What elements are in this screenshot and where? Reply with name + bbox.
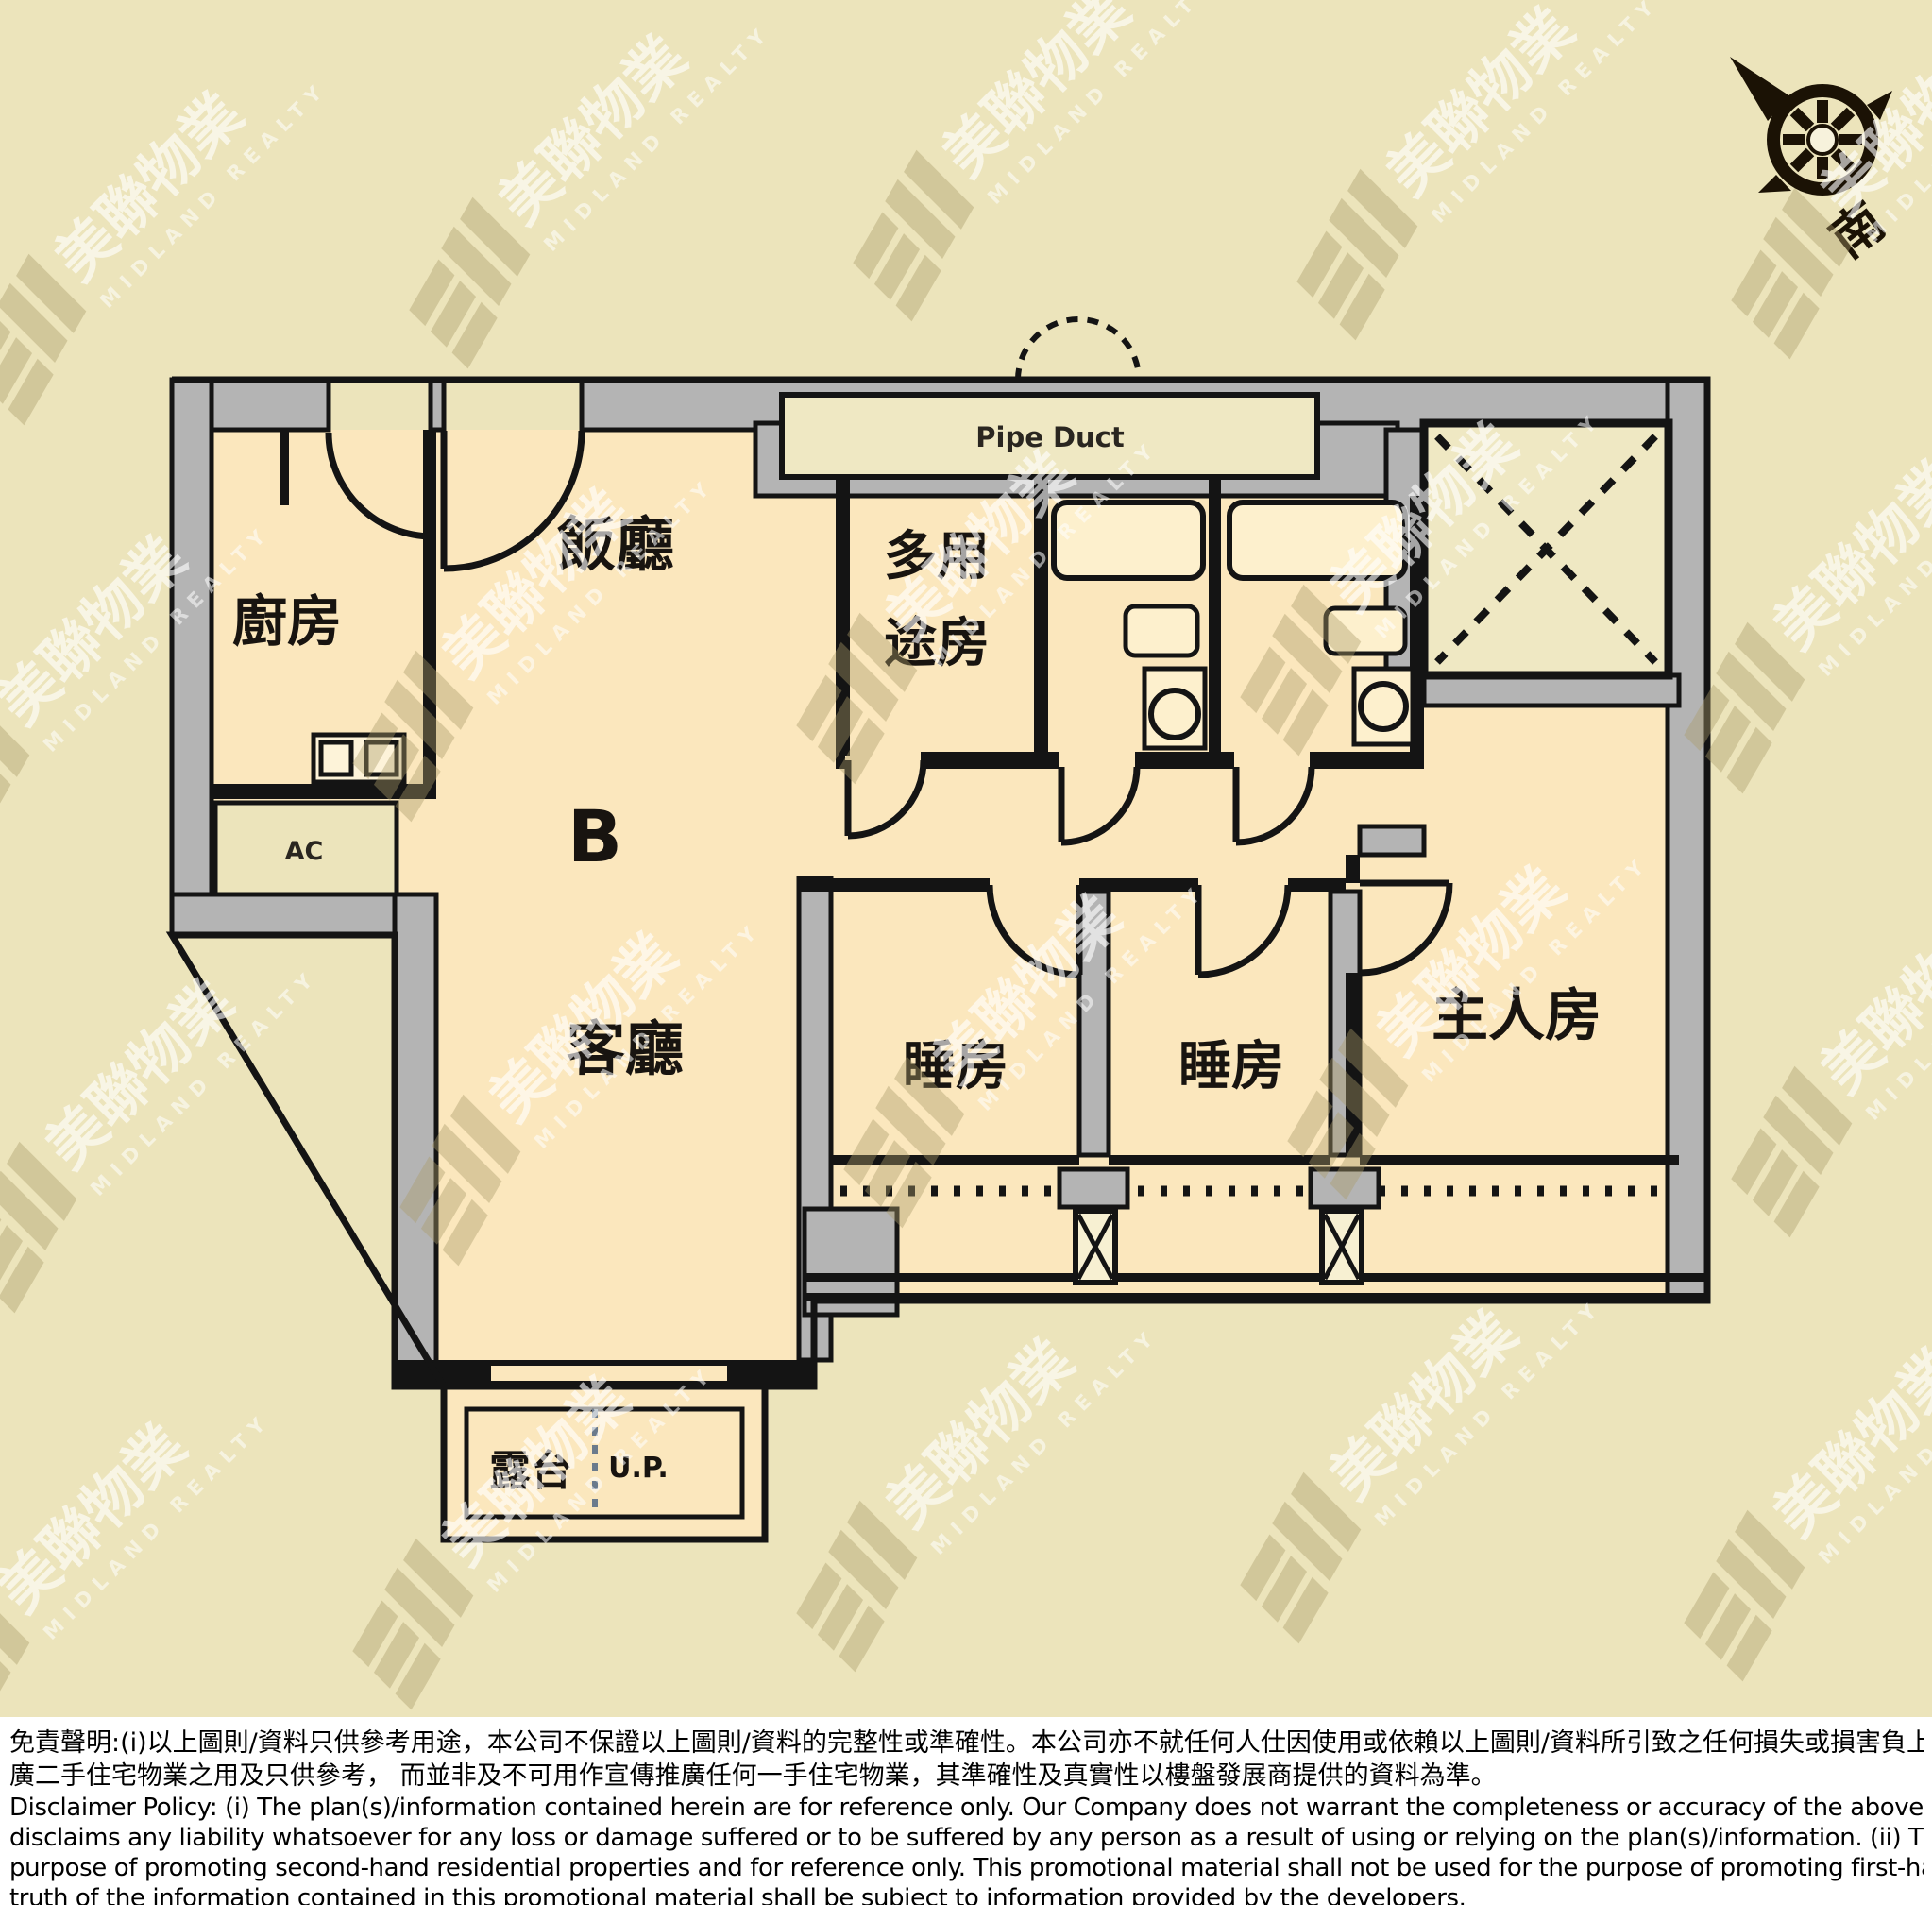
disclaimer-zh-line1: 免責聲明:(i)以上圖則/資料只供參考用途，本公司不保證以上圖則/資料的完整性或… — [9, 1726, 1924, 1760]
floor-plan-svg: Pipe Duct AC — [0, 0, 1932, 1717]
wall-left — [172, 380, 212, 935]
disclaimer-panel: 免責聲明:(i)以上圖則/資料只供參考用途，本公司不保證以上圖則/資料的完整性或… — [0, 1717, 1932, 1905]
unit-label: B — [568, 794, 622, 878]
wall-shaft-bottom — [1424, 675, 1679, 706]
wall-bath2-bottom — [1310, 752, 1410, 769]
toilet-bowl-1 — [1151, 690, 1198, 738]
wall-bedrooms-top-1 — [799, 878, 990, 892]
window-inner-3 — [1360, 1155, 1679, 1165]
wall-bath-partition — [1209, 430, 1221, 769]
floor-plan-page: Pipe Duct AC — [0, 0, 1932, 1905]
wall-mpr-bottom-b — [921, 752, 1048, 769]
kitchen-label: 廚房 — [232, 589, 342, 654]
wall-bath1-bottom-b — [1135, 752, 1234, 769]
window-outer-line-1 — [805, 1273, 1707, 1282]
toilet-bowl-2 — [1361, 684, 1406, 729]
compass-hub — [1808, 126, 1837, 154]
balcony-threshold-1 — [491, 1360, 727, 1366]
kitchen-door-jamb — [280, 430, 289, 505]
wall-top-stub — [431, 380, 444, 430]
wall-master-left-a — [1346, 855, 1360, 883]
ac-platform-label: AC — [285, 837, 324, 866]
bedroom-right-label: 睡房 — [1178, 1036, 1284, 1097]
wall-bedrooms-top-3 — [1288, 878, 1346, 892]
sill-block-1 — [1059, 1169, 1127, 1207]
wall-bedrooms-top-2 — [1079, 878, 1198, 892]
ac-platform: AC — [215, 803, 397, 894]
window-inner-2 — [1109, 1155, 1330, 1165]
wall-master-top — [1360, 826, 1424, 855]
wall-living-bottom-b — [727, 1360, 814, 1386]
disclaimer-en-line4: truth of the information contained in th… — [9, 1883, 1924, 1905]
stove-burner-1 — [321, 742, 351, 774]
disclaimer-zh-line2: 廣二手住宅物業之用及只供參考， 而並非及不可用作宣傳推廣任何一手住宅物業，其準確… — [9, 1760, 1924, 1793]
sink-1 — [1126, 606, 1197, 655]
pipe-duct-label: Pipe Duct — [975, 421, 1125, 453]
disclaimer-en-line3: purpose of promoting second-hand residen… — [9, 1853, 1924, 1883]
wall-bath1-bottom-a — [1048, 752, 1059, 769]
disclaimer-en-line1: Disclaimer Policy: (i) The plan(s)/infor… — [9, 1793, 1924, 1823]
disclaimer-en-line2: disclaims any liability whatsoever for a… — [9, 1823, 1924, 1853]
